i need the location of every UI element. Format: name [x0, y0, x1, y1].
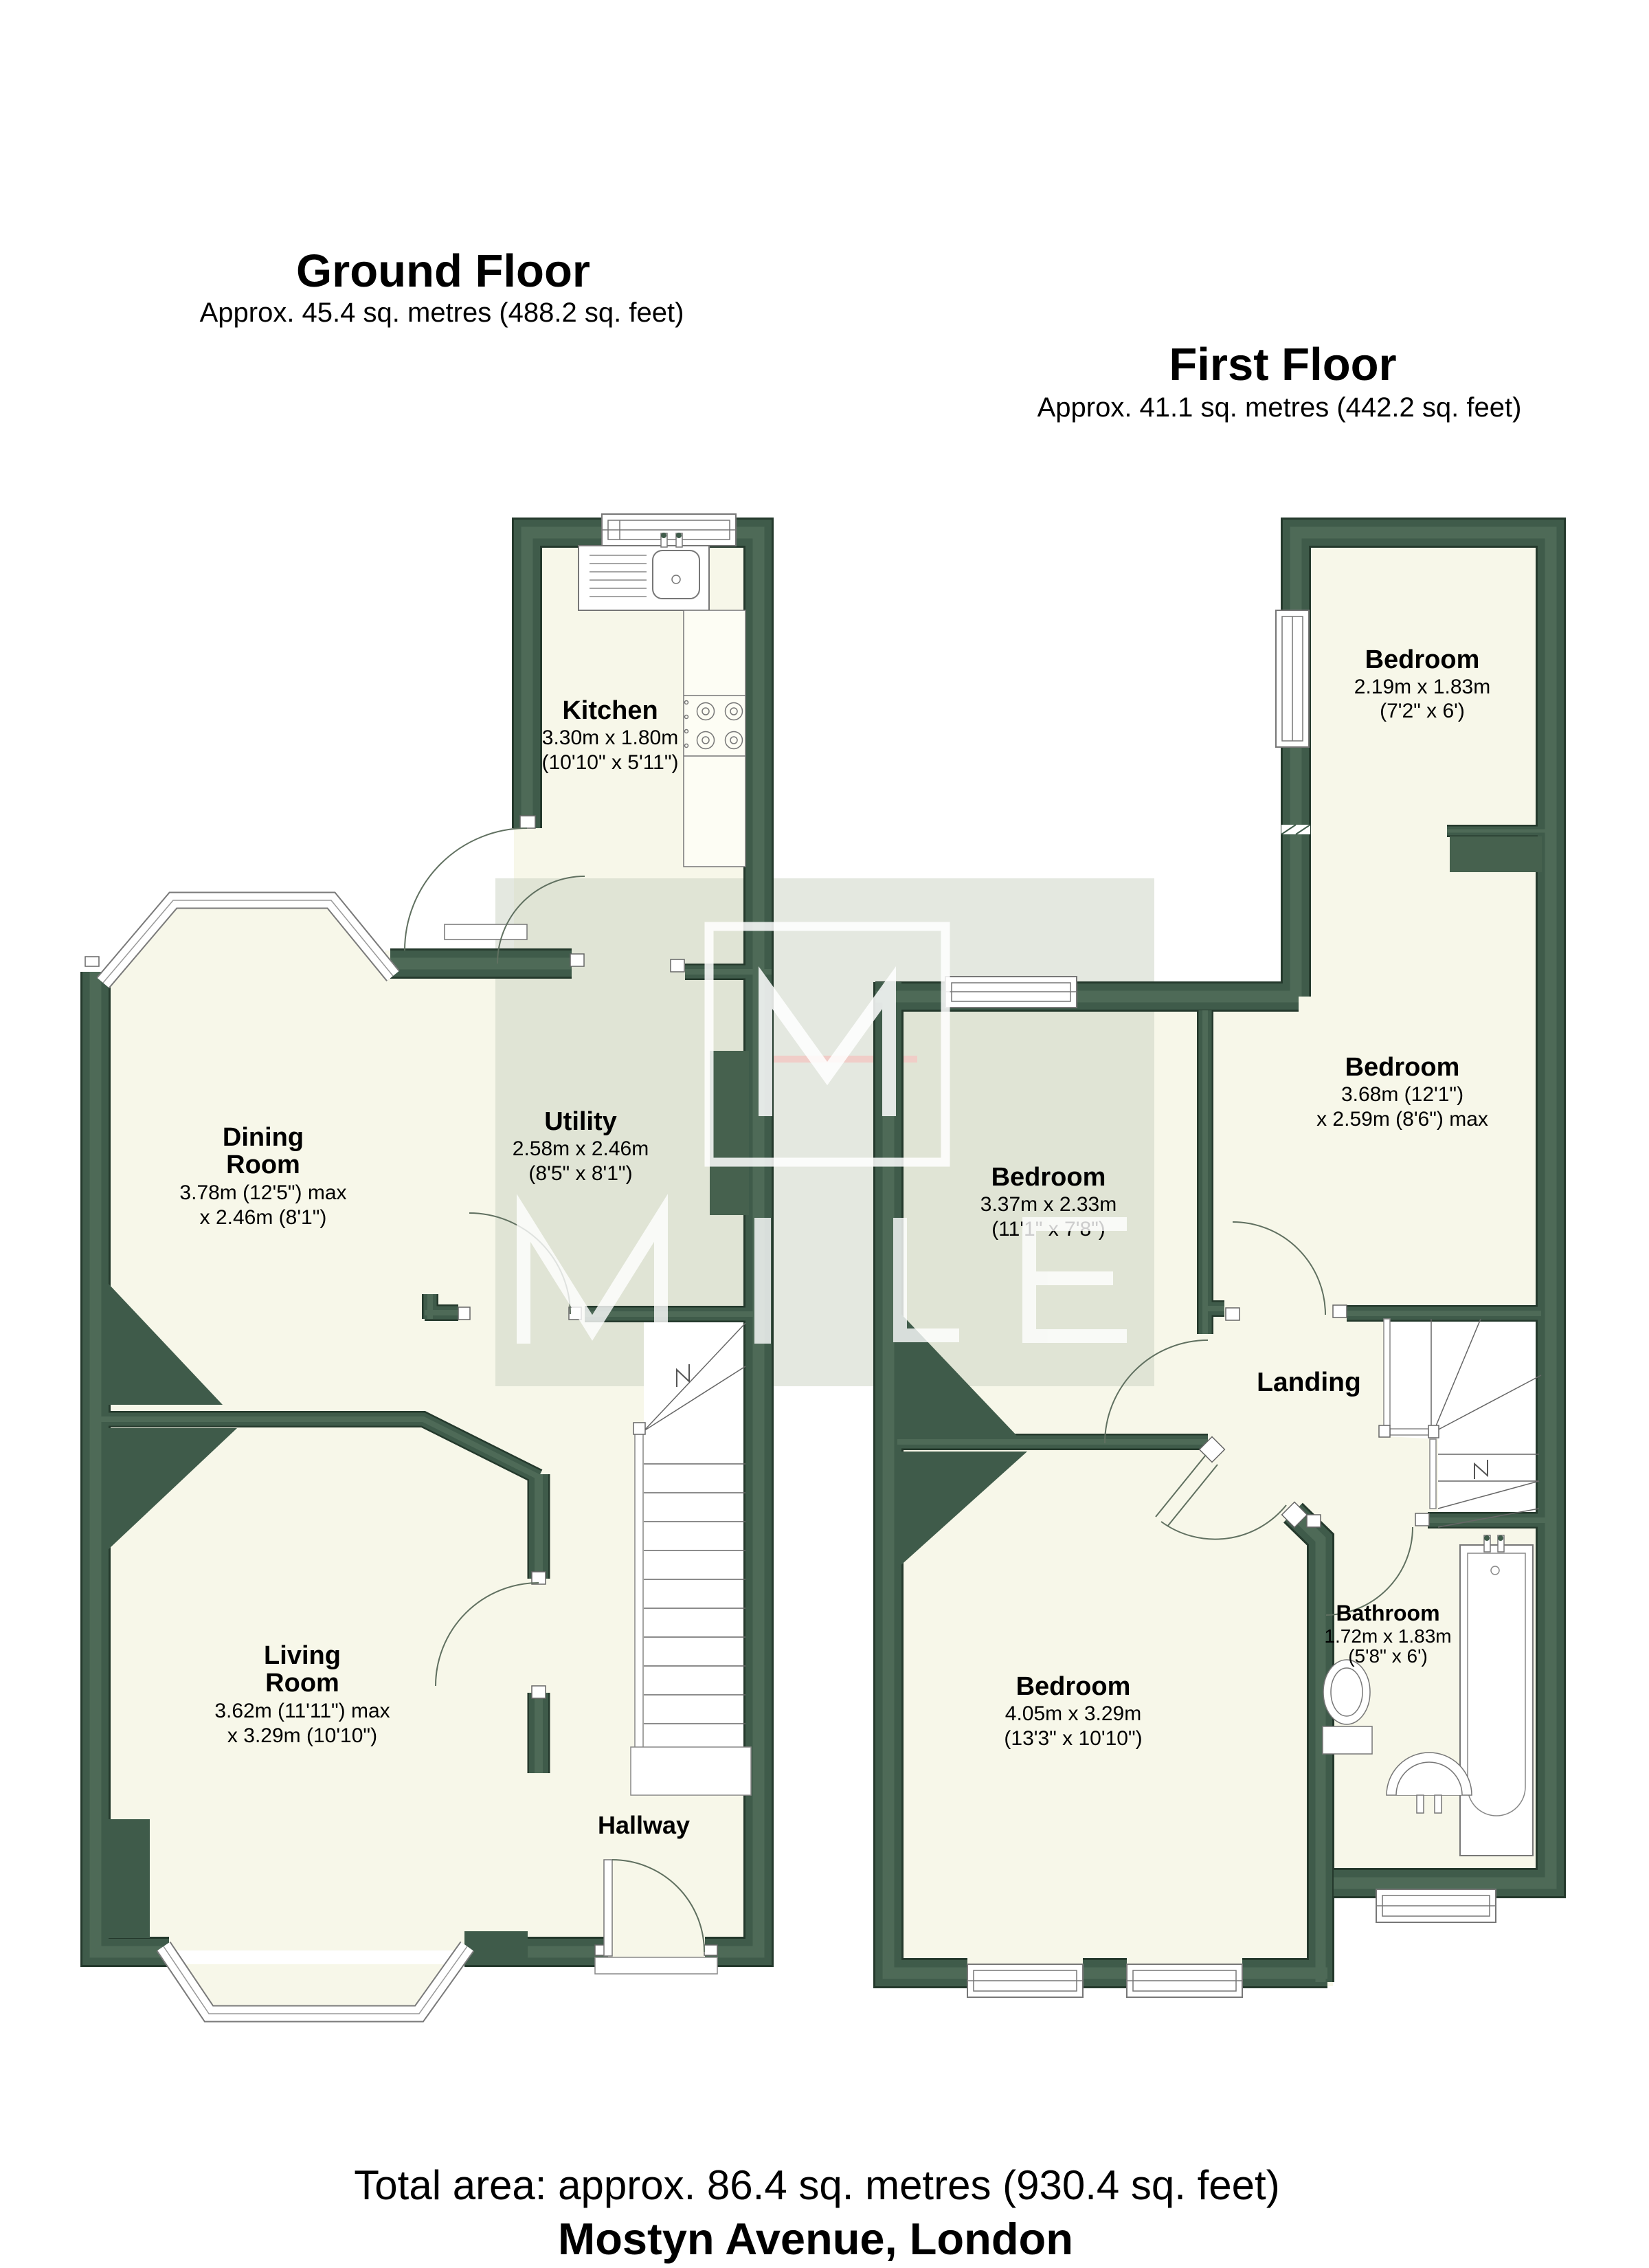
svg-text:(10'10" x 5'11"): (10'10" x 5'11"): [542, 751, 679, 774]
svg-text:3.78m (12'5") max: 3.78m (12'5") max: [179, 1181, 346, 1204]
svg-text:(13'3" x 10'10"): (13'3" x 10'10"): [1004, 1727, 1142, 1750]
svg-text:Utility: Utility: [544, 1107, 617, 1136]
svg-text:(8'5" x 8'1"): (8'5" x 8'1"): [528, 1162, 632, 1185]
svg-text:1.72m x 1.83m: 1.72m x 1.83m: [1324, 1625, 1451, 1647]
svg-text:Bedroom: Bedroom: [1345, 1053, 1460, 1082]
svg-text:Living: Living: [264, 1641, 341, 1670]
svg-text:Kitchen: Kitchen: [562, 696, 658, 725]
svg-text:Landing: Landing: [1257, 1368, 1361, 1397]
svg-text:2.58m x 2.46m: 2.58m x 2.46m: [513, 1137, 649, 1160]
svg-text:Bathroom: Bathroom: [1336, 1601, 1439, 1625]
svg-text:Total area: approx. 86.4 sq. m: Total area: approx. 86.4 sq. metres (930…: [354, 2162, 1279, 2208]
svg-text:(5'8" x 6'): (5'8" x 6'): [1348, 1645, 1428, 1667]
svg-text:Bedroom: Bedroom: [991, 1163, 1106, 1192]
svg-text:Dining: Dining: [223, 1123, 304, 1152]
svg-text:(7'2" x 6'): (7'2" x 6'): [1380, 700, 1465, 722]
svg-text:3.30m x 1.80m: 3.30m x 1.80m: [542, 726, 678, 749]
svg-text:Hallway: Hallway: [598, 1811, 690, 1839]
svg-text:Approx. 45.4 sq. metres (488.2: Approx. 45.4 sq. metres (488.2 sq. feet): [200, 298, 684, 328]
svg-text:x 2.46m (8'1"): x 2.46m (8'1"): [200, 1206, 327, 1229]
svg-text:Approx. 41.1 sq. metres (442.2: Approx. 41.1 sq. metres (442.2 sq. feet): [1037, 392, 1522, 423]
svg-text:3.37m x 2.33m: 3.37m x 2.33m: [980, 1193, 1117, 1216]
svg-text:4.05m x 3.29m: 4.05m x 3.29m: [1005, 1702, 1141, 1725]
svg-text:x 2.59m (8'6") max: x 2.59m (8'6") max: [1316, 1108, 1488, 1131]
svg-text:Mostyn Avenue, London: Mostyn Avenue, London: [558, 2214, 1073, 2264]
svg-text:First Floor: First Floor: [1169, 339, 1396, 390]
svg-text:Room: Room: [265, 1669, 339, 1698]
svg-text:3.62m (11'11") max: 3.62m (11'11") max: [214, 1700, 390, 1722]
svg-text:x 3.29m (10'10"): x 3.29m (10'10"): [227, 1724, 377, 1747]
svg-text:3.68m (12'1"): 3.68m (12'1"): [1341, 1083, 1463, 1106]
svg-text:Bedroom: Bedroom: [1365, 645, 1480, 674]
svg-text:Bedroom: Bedroom: [1016, 1672, 1131, 1701]
svg-text:Ground Floor: Ground Floor: [296, 245, 590, 297]
svg-text:Room: Room: [226, 1150, 300, 1179]
svg-text:2.19m x 1.83m: 2.19m x 1.83m: [1354, 676, 1490, 698]
